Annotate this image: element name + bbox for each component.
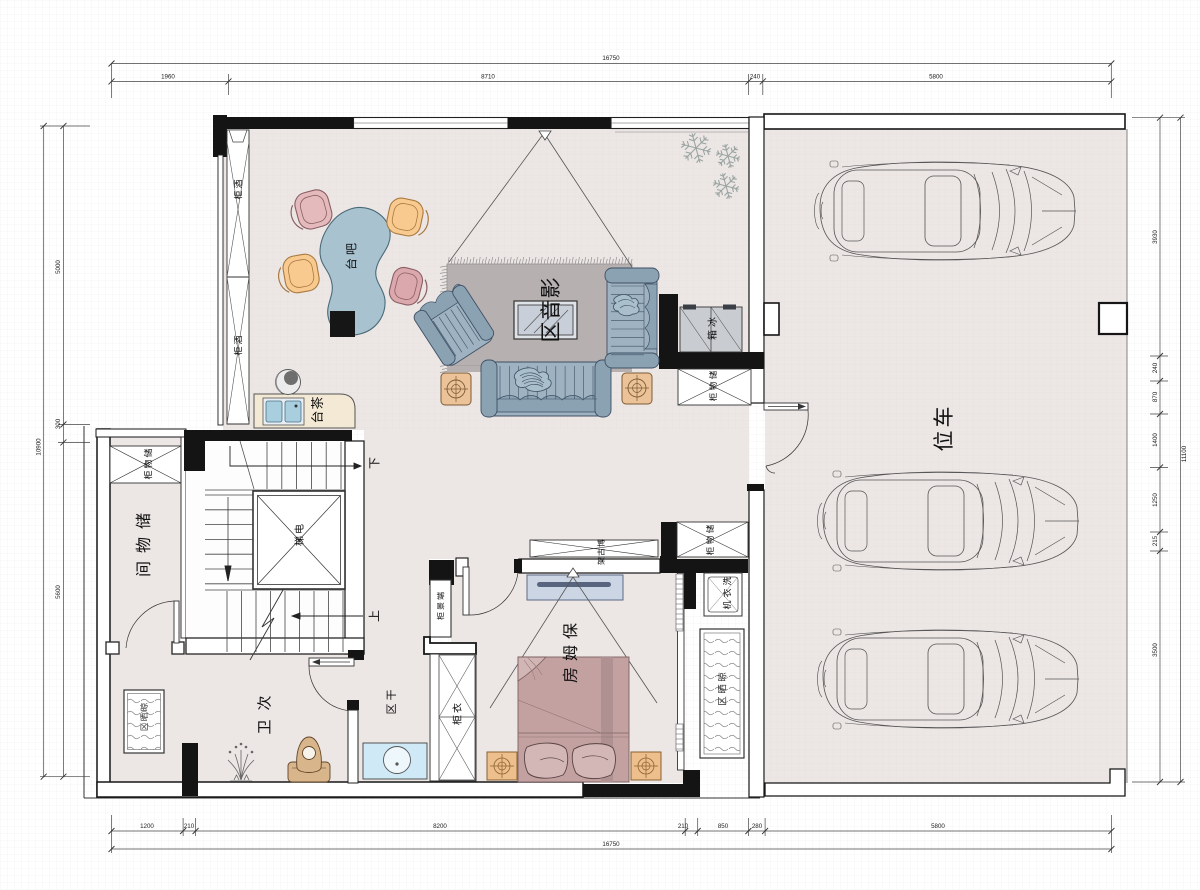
svg-text:1960: 1960	[161, 74, 175, 81]
svg-text:240: 240	[1152, 362, 1159, 373]
svg-text:1200: 1200	[140, 823, 154, 830]
svg-text:8710: 8710	[481, 74, 495, 81]
svg-text:850: 850	[718, 823, 729, 830]
svg-text:5800: 5800	[929, 74, 943, 81]
svg-text:1400: 1400	[1152, 433, 1159, 447]
svg-text:280: 280	[752, 823, 763, 830]
svg-text:300: 300	[55, 418, 62, 429]
svg-text:10900: 10900	[36, 438, 43, 456]
svg-text:16750: 16750	[602, 841, 620, 848]
svg-text:3930: 3930	[1152, 230, 1159, 244]
svg-text:5800: 5800	[931, 823, 945, 830]
svg-text:5600: 5600	[55, 585, 62, 599]
svg-text:210: 210	[678, 823, 689, 830]
svg-text:240: 240	[750, 74, 761, 81]
svg-text:210: 210	[184, 823, 195, 830]
svg-text:16750: 16750	[602, 55, 620, 62]
svg-text:8200: 8200	[433, 823, 447, 830]
svg-text:215: 215	[1152, 535, 1159, 546]
svg-text:870: 870	[1152, 391, 1159, 402]
svg-text:1250: 1250	[1152, 493, 1159, 507]
svg-text:5000: 5000	[55, 260, 62, 274]
svg-text:3500: 3500	[1152, 643, 1159, 657]
svg-text:11100: 11100	[1181, 445, 1188, 462]
